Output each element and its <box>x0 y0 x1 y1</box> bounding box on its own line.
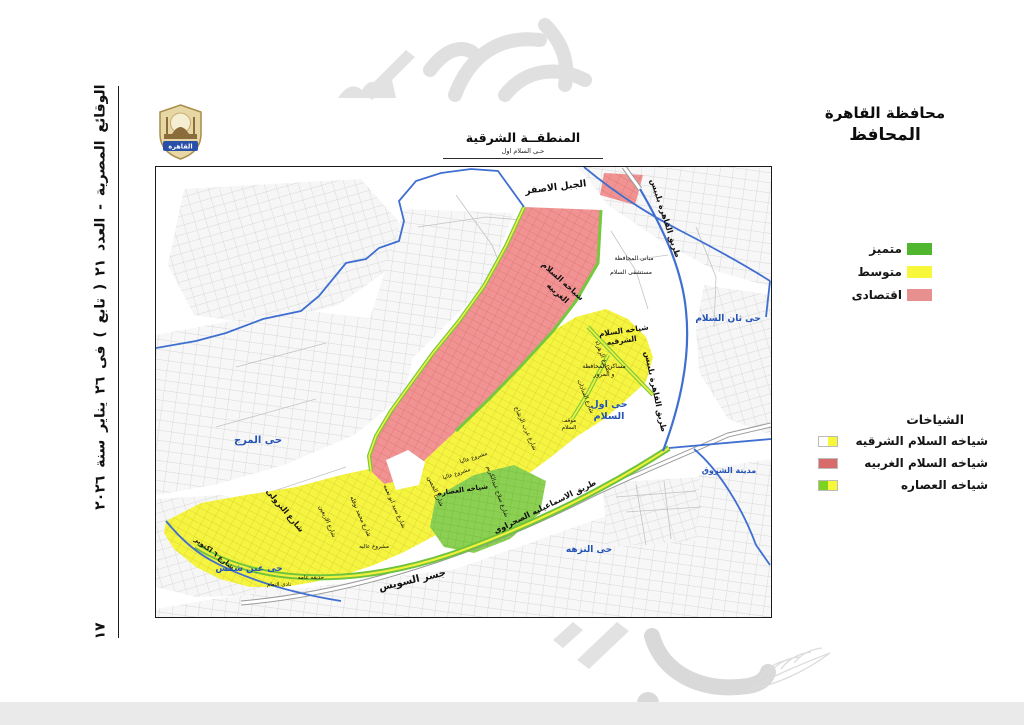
map-label-belbeis-road-bottom: طريق القاهرة بلبيس <box>642 350 669 432</box>
map-label-shorouk-city: مدينة الشروق <box>702 466 757 475</box>
swatch-half <box>828 459 837 468</box>
legend-label: شياخه العصاره <box>901 478 988 492</box>
logo-label: القاهرة <box>168 143 192 151</box>
legend-label: متميز <box>869 242 902 256</box>
map-label-mawkaf-1: موقف <box>562 418 576 424</box>
map-label-jabal-asfar: الجبل الاصفر <box>523 178 586 197</box>
legend-district-salam-west: شياخه السلام الغربيه <box>818 456 988 470</box>
map-label-than-salam: حى ثان السلام <box>695 314 760 324</box>
legend-label: شياخه السلام الشرقيه <box>855 434 988 448</box>
legend-swatch-green <box>907 243 932 255</box>
map-label-nozha-district: حى النزهه <box>566 545 612 555</box>
cairo-governorate-logo: القاهرة <box>157 104 204 160</box>
map-title: المنطقــة الشرقية <box>443 130 603 145</box>
map-label-ain-shams-district: حى عين شمس <box>215 564 282 574</box>
page-number: ١٧ <box>93 622 109 639</box>
map-title-block: المنطقــة الشرقية حـى السلام اول <box>443 130 603 159</box>
map-label-mashrou-alia-3: مشروع عاليه <box>359 544 389 550</box>
map-label-marg-district: حى المرج <box>234 435 282 446</box>
legend-district-osara: شياخه العصاره <box>818 478 988 492</box>
map-canvas: الجبل الاصفر طريق القاهرة بلبيس طريق الق… <box>155 166 772 618</box>
swatch-half <box>819 459 828 468</box>
gazette-sidebar-text: الوقائع المصرية - العدد ٢١ ( تابع ) فى ٢… <box>84 85 118 640</box>
gazette-issue-line: الوقائع المصرية - العدد ٢١ ( تابع ) فى ٢… <box>93 85 109 510</box>
swatch-half <box>828 481 837 490</box>
map-label-masaken-1: مساكن المحافظة <box>582 363 625 370</box>
map-label-mawkaf-2: السلام <box>562 425 577 431</box>
governor-title: المحافظ <box>800 125 970 145</box>
legend-swatch <box>818 480 838 491</box>
governorate-title: محافظة القاهرة <box>800 104 970 122</box>
header-block: محافظة القاهرة المحافظ <box>800 104 970 145</box>
legend-level-premium: متميز <box>820 242 932 256</box>
legend-swatch-red <box>907 289 932 301</box>
map-label-awal-salam-1: حى اول <box>590 399 627 410</box>
swatch-half <box>819 481 828 490</box>
swatch-half <box>819 437 828 446</box>
swatch-half <box>828 437 837 446</box>
map-label-awal-salam-2: السلام <box>594 411 625 422</box>
legend-label: اقتصادى <box>852 288 902 302</box>
map-subtitle: حـى السلام اول <box>443 147 603 155</box>
legend-swatch <box>818 458 838 469</box>
legend-swatch-yellow <box>907 266 932 278</box>
legend-levels: متميز متوسط اقتصادى <box>820 242 932 311</box>
map-label-public-garden: حديقه عامه <box>298 575 324 581</box>
legend-label: شياخه السلام الغربيه <box>864 456 988 470</box>
map-label-governorate-buildings: مبانى المحافظة <box>614 255 653 262</box>
sidebar-divider-line <box>118 86 119 638</box>
page-bottom-band <box>0 702 1024 725</box>
legend-label: متوسط <box>857 265 902 279</box>
legend-swatch <box>818 436 838 447</box>
map-label-masaken-2: و المرور <box>593 371 615 378</box>
map-label-naam-club: نادى النعام <box>267 582 292 588</box>
legend-districts: الشياخات شياخه السلام الشرقيه شياخه السل… <box>818 412 988 500</box>
legend-districts-title: الشياخات <box>818 412 988 427</box>
legend-level-medium: متوسط <box>820 265 932 279</box>
legend-district-salam-east: شياخه السلام الشرقيه <box>818 434 988 448</box>
legend-level-economy: اقتصادى <box>820 288 932 302</box>
map-label-salam-hospital: مستشفى السلام <box>610 269 652 276</box>
